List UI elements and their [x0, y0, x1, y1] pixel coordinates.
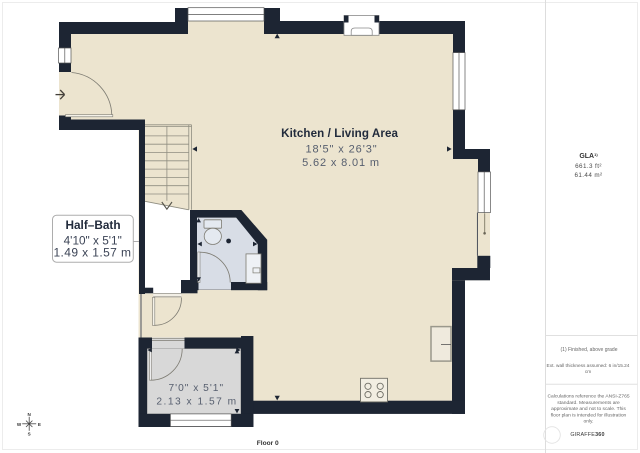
svg-text:2.13 x 1.57 m: 2.13 x 1.57 m	[156, 397, 237, 408]
svg-text:Half–Bath: Half–Bath	[65, 218, 120, 232]
svg-text:W: W	[17, 422, 22, 427]
svg-text:Calculations reference the ANS: Calculations reference the ANSI-Z765	[547, 394, 629, 400]
svg-text:(1) Finished, above grade: (1) Finished, above grade	[561, 347, 618, 353]
svg-text:Floor 0: Floor 0	[257, 440, 279, 447]
svg-text:approximate and not to scale.: approximate and not to scale. This	[551, 406, 626, 412]
svg-text:S: S	[28, 432, 31, 437]
svg-text:floor plan is intended for ill: floor plan is intended for illustration	[551, 412, 627, 418]
svg-text:Ext. wall thickness assumed: 6: Ext. wall thickness assumed: 6 in/15.24	[547, 363, 630, 369]
svg-text:GIRAFFE360: GIRAFFE360	[570, 432, 604, 438]
svg-text:only.: only.	[584, 419, 594, 425]
svg-text:1.49 x 1.57 m: 1.49 x 1.57 m	[53, 245, 131, 259]
svg-text:61.44 m²: 61.44 m²	[574, 172, 602, 179]
svg-text:5.62 x 8.01 m: 5.62 x 8.01 m	[302, 157, 380, 169]
svg-text:E: E	[38, 422, 41, 427]
svg-text:cm: cm	[585, 370, 591, 375]
svg-text:Kitchen / Living Area: Kitchen / Living Area	[281, 127, 398, 140]
svg-text:661.3 ft²: 661.3 ft²	[575, 163, 602, 170]
svg-text:7'0" x 5'1": 7'0" x 5'1"	[169, 383, 225, 394]
svg-text:18'5" x 26'3": 18'5" x 26'3"	[305, 143, 377, 155]
svg-text:standard. Measurements are: standard. Measurements are	[557, 400, 620, 406]
